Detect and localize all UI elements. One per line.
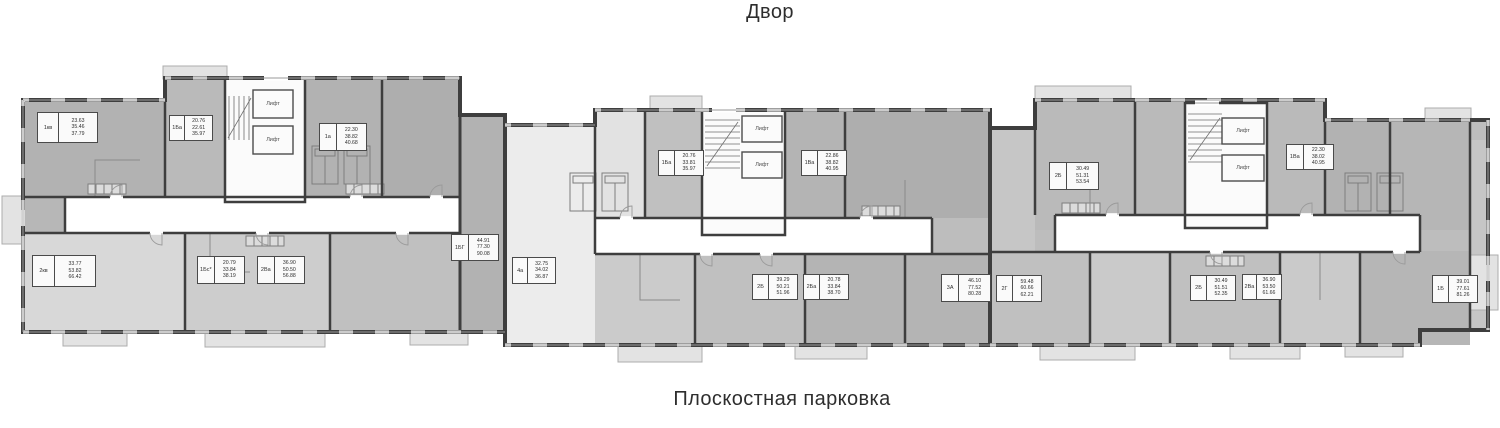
unit-type: 1Ва	[802, 151, 818, 175]
unit-areas: 23.6335.4637.79	[59, 113, 97, 142]
unit-type: 2Б	[1050, 163, 1067, 189]
unit-areas: 33.7753.8266.42	[55, 256, 95, 286]
unit-type: 1Бс*	[198, 257, 215, 283]
unit-areas: 20.7933.8438.19	[215, 257, 244, 283]
parking-label: Плоскостная парковка	[673, 388, 890, 411]
unit-areas: 39.2950.2151.96	[769, 275, 797, 299]
unit-area-value: 80.28	[968, 291, 981, 298]
lift-label: Лифт	[755, 126, 769, 132]
unit-area-value: 53.54	[1076, 179, 1089, 186]
unit-type: 4а	[513, 258, 528, 283]
unit-type: 1а	[320, 124, 337, 150]
unit-areas: 20.7622.6135.97	[185, 116, 212, 140]
labels-overlay: 1кв23.6335.4637.791Ба20.7622.6135.971а22…	[0, 0, 1500, 428]
unit-label[interactable]: 1Б39.0177.6181.26	[1432, 275, 1478, 303]
unit-label[interactable]: 1Ба20.7633.8135.97	[658, 150, 704, 176]
unit-area-value: 56.88	[283, 273, 296, 280]
unit-type: 2Ба	[804, 275, 820, 299]
unit-area-value: 52.35	[1214, 291, 1227, 298]
unit-label[interactable]: 1Ва22.3038.0240.95	[1286, 144, 1334, 170]
unit-area-value: 40.95	[825, 166, 838, 173]
unit-type: 1БГ	[452, 235, 469, 260]
unit-areas: 44.9177.3090.08	[469, 235, 498, 260]
unit-area-value: 35.97	[192, 131, 205, 138]
unit-label[interactable]: 1Ва22.8638.8240.95	[801, 150, 847, 176]
unit-type: 1кв	[38, 113, 59, 142]
unit-label[interactable]: 2Ба20.7833.8438.70	[803, 274, 849, 300]
unit-type: 1Б	[1433, 276, 1449, 302]
unit-areas: 30.4951.5152.35	[1207, 276, 1235, 300]
unit-areas: 22.3038.0240.95	[1304, 145, 1333, 169]
lift-label: Лифт	[266, 137, 280, 143]
unit-type: 1Ба	[170, 116, 185, 140]
unit-areas: 20.7833.8438.70	[820, 275, 848, 299]
unit-type: 2кв	[33, 256, 55, 286]
unit-area-value: 37.79	[72, 131, 85, 138]
floor-plan-page: Двор	[0, 0, 1500, 428]
unit-areas: 22.8638.8240.95	[818, 151, 846, 175]
unit-label[interactable]: 1БГ44.9177.3090.08	[451, 234, 499, 261]
unit-label[interactable]: 4а32.7534.0236.87	[512, 257, 556, 284]
unit-areas: 30.4951.3153.54	[1067, 163, 1098, 189]
unit-label[interactable]: 1Ба20.7622.6135.97	[169, 115, 213, 141]
unit-area-value: 38.19	[223, 273, 236, 280]
unit-label[interactable]: 2Ва36.9053.5061.66	[1242, 274, 1282, 300]
unit-type: 2Б	[1191, 276, 1207, 300]
unit-area-value: 62.21	[1020, 292, 1033, 299]
unit-label[interactable]: 3А46.1077.5280.28	[941, 274, 991, 302]
unit-area-value: 51.96	[776, 290, 789, 297]
courtyard-label: Двор	[746, 1, 794, 24]
unit-area-value: 81.26	[1456, 292, 1469, 299]
unit-type: 2Б	[753, 275, 769, 299]
lift-label: Лифт	[1236, 165, 1250, 171]
unit-areas: 46.1077.5280.28	[959, 275, 990, 301]
unit-area-value: 61.66	[1262, 290, 1275, 297]
lift-label: Лифт	[755, 162, 769, 168]
unit-areas: 36.9053.5061.66	[1257, 275, 1281, 299]
unit-label[interactable]: 1кв23.6335.4637.79	[37, 112, 98, 143]
unit-label[interactable]: 1Бс*20.7933.8438.19	[197, 256, 245, 284]
unit-label[interactable]: 1а22.3038.8240.68	[319, 123, 367, 151]
unit-label[interactable]: 2Б30.4951.3153.54	[1049, 162, 1099, 190]
unit-type: 2Ва	[1243, 275, 1257, 299]
unit-type: 1Ба	[659, 151, 675, 175]
unit-label[interactable]: 2кв33.7753.8266.42	[32, 255, 96, 287]
unit-area-value: 90.08	[477, 251, 490, 258]
unit-type: 1Ва	[1287, 145, 1304, 169]
lift-label: Лифт	[266, 101, 280, 107]
unit-label[interactable]: 2Б30.4951.5152.35	[1190, 275, 1236, 301]
unit-areas: 36.9050.5056.88	[275, 257, 304, 283]
unit-type: 2Ва	[258, 257, 275, 283]
unit-areas: 32.7534.0236.87	[528, 258, 555, 283]
unit-area-value: 40.95	[1312, 160, 1325, 167]
unit-area-value: 38.70	[827, 290, 840, 297]
unit-type: 2Г	[997, 276, 1013, 301]
unit-label[interactable]: 2Г59.4860.6662.21	[996, 275, 1042, 302]
unit-label[interactable]: 2Ва36.9050.5056.88	[257, 256, 305, 284]
lift-label: Лифт	[1236, 128, 1250, 134]
unit-area-value: 40.68	[345, 140, 358, 147]
unit-area-value: 35.97	[682, 166, 695, 173]
unit-label[interactable]: 2Б39.2950.2151.96	[752, 274, 798, 300]
unit-area-value: 66.42	[69, 274, 82, 281]
unit-areas: 20.7633.8135.97	[675, 151, 703, 175]
unit-areas: 22.3038.8240.68	[337, 124, 366, 150]
unit-area-value: 36.87	[535, 274, 548, 281]
unit-areas: 39.0177.6181.26	[1449, 276, 1477, 302]
unit-areas: 59.4860.6662.21	[1013, 276, 1041, 301]
unit-type: 3А	[942, 275, 959, 301]
